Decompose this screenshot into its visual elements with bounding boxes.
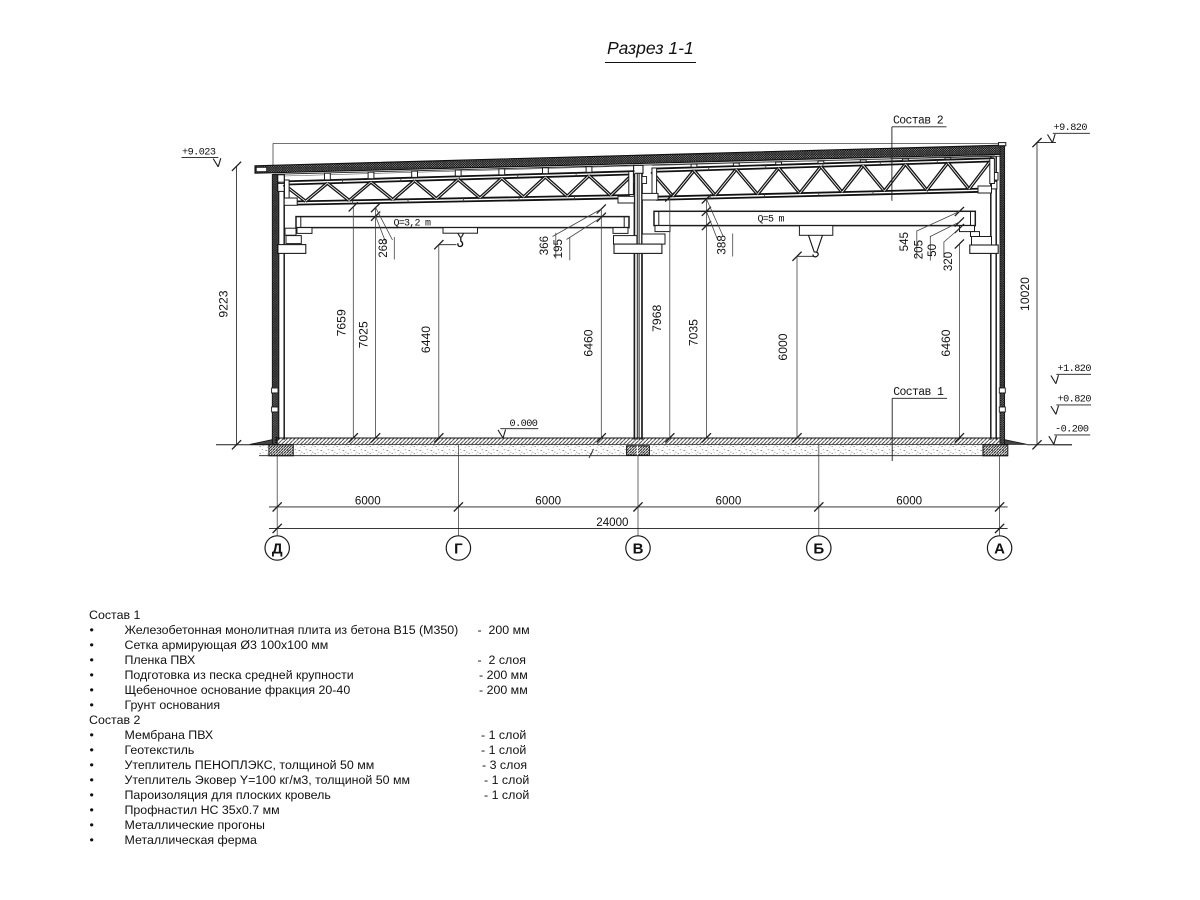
- svg-text:205: 205: [913, 240, 926, 259]
- svg-text:6000: 6000: [355, 495, 381, 508]
- svg-text:7035: 7035: [687, 319, 701, 346]
- svg-text:268: 268: [377, 238, 390, 257]
- svg-text:+0.820: +0.820: [1058, 395, 1092, 406]
- svg-text:388: 388: [715, 235, 728, 254]
- svg-text:6460: 6460: [939, 329, 953, 356]
- svg-text:6460: 6460: [582, 329, 596, 356]
- svg-text:Б: Б: [813, 541, 824, 558]
- svg-text:545: 545: [898, 232, 911, 251]
- svg-text:6000: 6000: [776, 333, 790, 360]
- svg-text:7659: 7659: [335, 309, 349, 336]
- svg-text:50: 50: [926, 244, 939, 257]
- svg-text:Г: Г: [454, 541, 463, 558]
- svg-text:А: А: [994, 541, 1005, 558]
- svg-text:Д: Д: [272, 541, 283, 558]
- svg-text:7025: 7025: [357, 321, 371, 348]
- svg-text:-0.200: -0.200: [1055, 424, 1089, 435]
- svg-text:10020: 10020: [1018, 277, 1032, 311]
- svg-text:Q=3,2 m: Q=3,2 m: [394, 218, 432, 229]
- svg-text:+1.820: +1.820: [1058, 364, 1092, 375]
- svg-text:9223: 9223: [217, 290, 231, 317]
- svg-text:7968: 7968: [650, 305, 664, 332]
- svg-text:В: В: [633, 541, 644, 558]
- svg-text:24000: 24000: [596, 516, 628, 529]
- svg-text:6440: 6440: [419, 326, 433, 353]
- svg-text:Q=5 m: Q=5 m: [758, 215, 785, 226]
- svg-text:Состав 1: Состав 1: [893, 386, 944, 399]
- svg-text:6000: 6000: [716, 495, 742, 508]
- svg-text:6000: 6000: [896, 495, 922, 508]
- svg-text:Состав 2: Состав 2: [893, 115, 944, 128]
- svg-text:6000: 6000: [535, 495, 561, 508]
- svg-text:320: 320: [942, 252, 955, 271]
- svg-text:366: 366: [538, 236, 551, 255]
- svg-text:+9.820: +9.820: [1054, 123, 1088, 134]
- svg-text:195: 195: [552, 239, 565, 258]
